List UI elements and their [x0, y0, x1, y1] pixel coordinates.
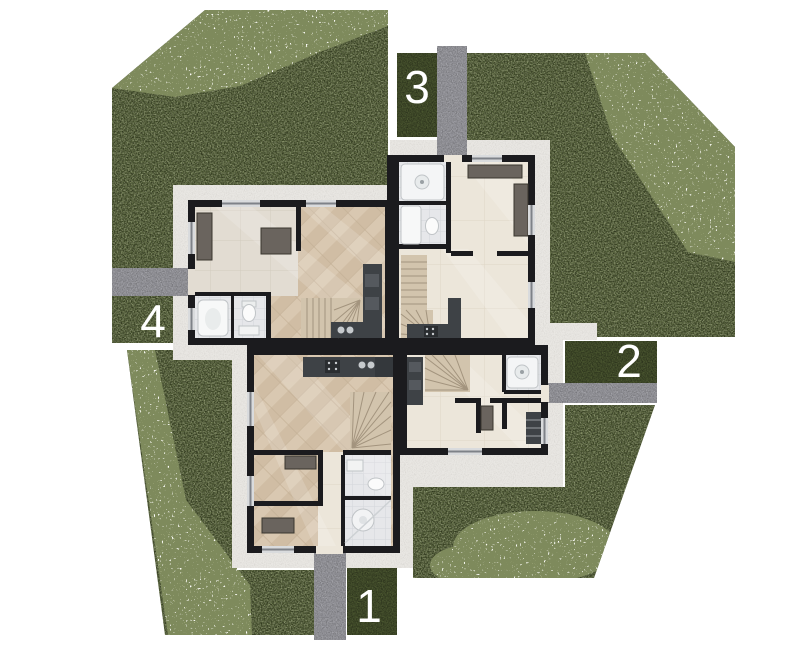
- unit-4: [188, 200, 385, 338]
- unit-2-label: 2: [607, 336, 651, 386]
- unit-3-label: 3: [395, 62, 439, 112]
- unit-1-stairs: [350, 392, 391, 450]
- door-unit-4: [188, 269, 196, 295]
- unit-2-stairs: [425, 355, 470, 392]
- site-plan: 1 2 3 4: [0, 0, 800, 646]
- walkway-unit-4: [112, 268, 195, 296]
- unit-4-label: 4: [131, 296, 175, 346]
- unit-1: [247, 355, 393, 553]
- unit-2-bath-fixtures: [507, 357, 538, 388]
- unit-2-steps: [526, 412, 541, 444]
- unit-3: [399, 155, 535, 338]
- unit-2-kitchen-counter: [407, 357, 423, 405]
- door-unit-3: [444, 155, 462, 163]
- unit-2-wardrobe: [481, 406, 493, 430]
- unit-1-label: 1: [347, 581, 391, 631]
- unit-4-bath-fixtures: [198, 300, 259, 336]
- unit-1-kitchen-counter: [303, 357, 393, 377]
- walkway-unit-3: [437, 46, 467, 158]
- door-unit-1: [316, 545, 343, 554]
- door-unit-2: [540, 385, 549, 402]
- walkway-unit-1: [314, 546, 346, 640]
- unit-2: [407, 355, 548, 455]
